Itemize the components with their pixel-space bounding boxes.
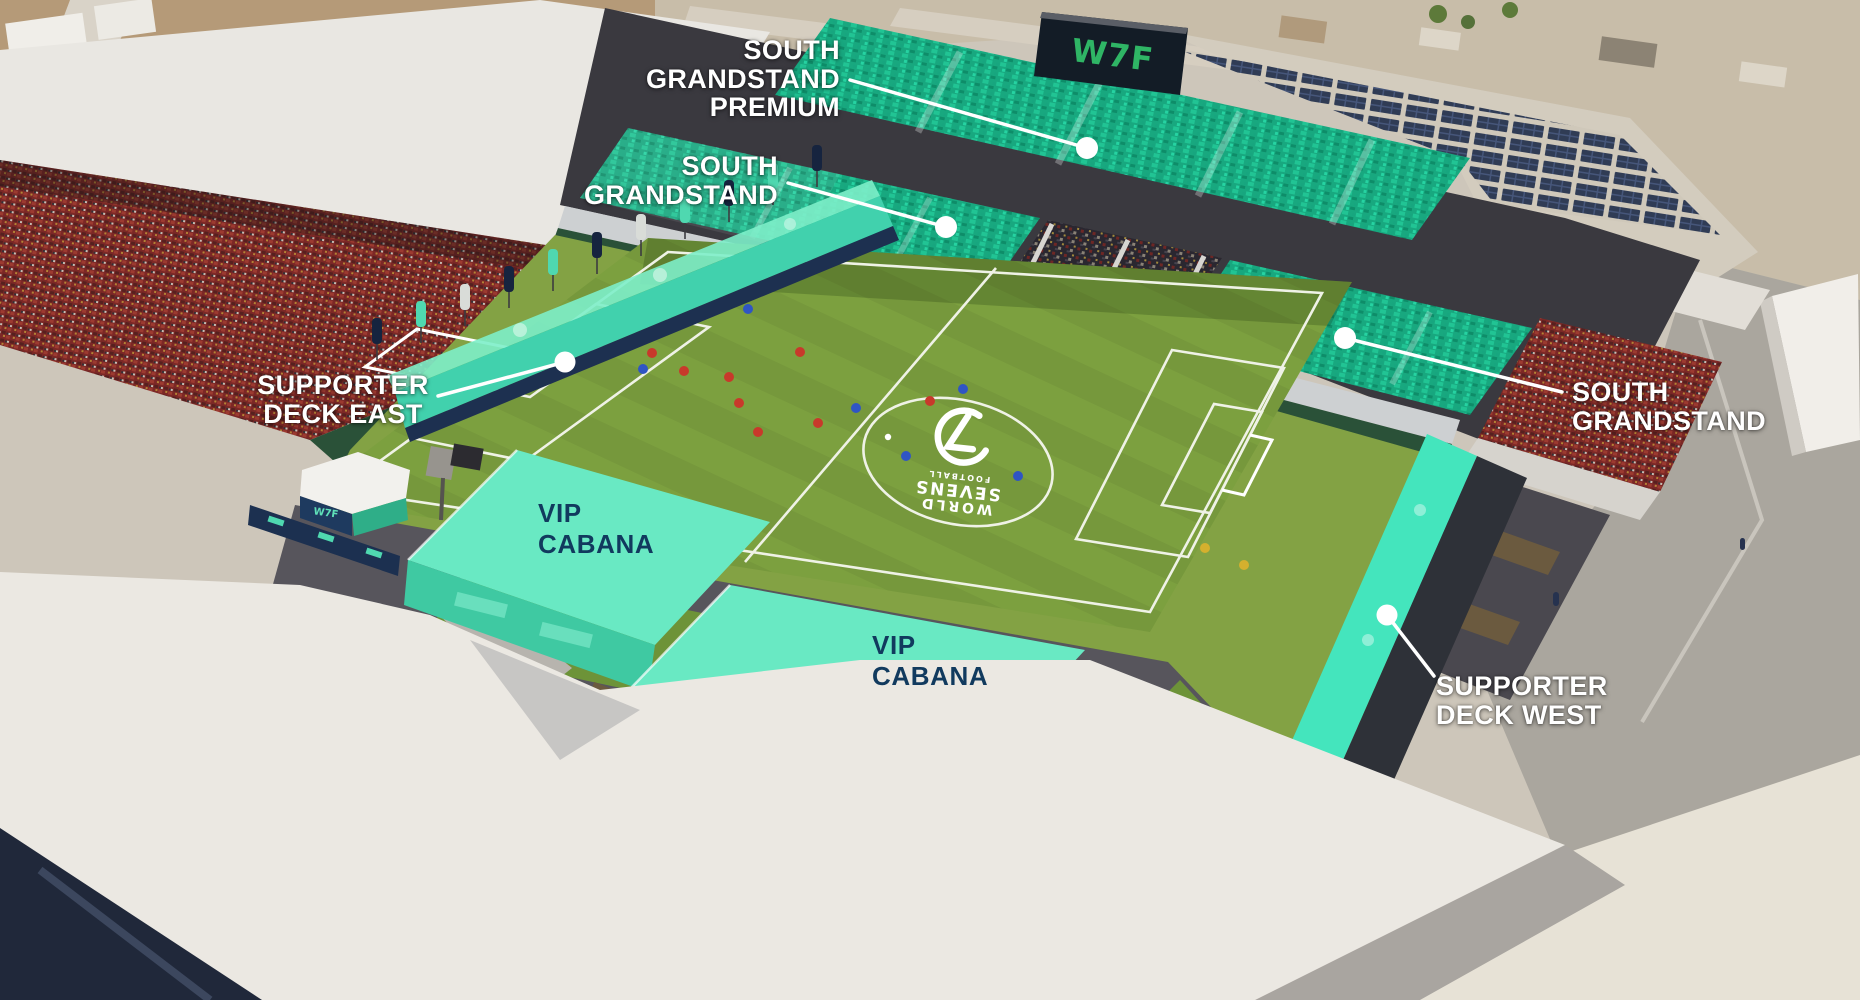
label-vip-cabana-west[interactable]: VIP CABANA: [872, 630, 988, 691]
callout-dot-south-grandstand-premium: [1076, 137, 1098, 159]
label-line: VIP: [872, 630, 988, 661]
label-line: VIP: [538, 498, 654, 529]
callout-dot-supporter-deck-east: [555, 352, 576, 373]
label-supporter-deck-east[interactable]: SUPPORTER DECK EAST: [248, 371, 438, 428]
label-south-grandstand-premium[interactable]: SOUTH GRANDSTAND PREMIUM: [646, 36, 840, 122]
label-line: GRANDSTAND: [1572, 407, 1766, 436]
callout-dot-south-grandstand-right: [1334, 327, 1356, 349]
label-line: DECK WEST: [1436, 701, 1608, 730]
label-south-grandstand-right[interactable]: SOUTH GRANDSTAND: [1572, 378, 1766, 435]
label-line: CABANA: [538, 529, 654, 560]
label-line: SUPPORTER: [248, 371, 438, 400]
label-supporter-deck-west[interactable]: SUPPORTER DECK WEST: [1436, 672, 1608, 729]
label-line: SOUTH: [1572, 378, 1766, 407]
label-line: PREMIUM: [646, 93, 840, 122]
stadium-seating-diagram: W7F WORLD SEVENS FOOTBALL: [0, 0, 1860, 1000]
label-line: SOUTH: [584, 152, 778, 181]
callout-dot-supporter-deck-west: [1377, 605, 1398, 626]
ball: [885, 434, 891, 440]
label-vip-cabana-east[interactable]: VIP CABANA: [538, 498, 654, 559]
label-line: SOUTH: [646, 36, 840, 65]
callout-dot-south-grandstand-upper: [935, 216, 957, 238]
stadium-render: W7F WORLD SEVENS FOOTBALL: [0, 0, 1860, 1000]
label-line: SUPPORTER: [1436, 672, 1608, 701]
label-south-grandstand-upper[interactable]: SOUTH GRANDSTAND: [584, 152, 778, 209]
label-line: GRANDSTAND: [646, 65, 840, 94]
label-line: CABANA: [872, 661, 988, 692]
label-line: GRANDSTAND: [584, 181, 778, 210]
label-line: DECK EAST: [248, 400, 438, 429]
